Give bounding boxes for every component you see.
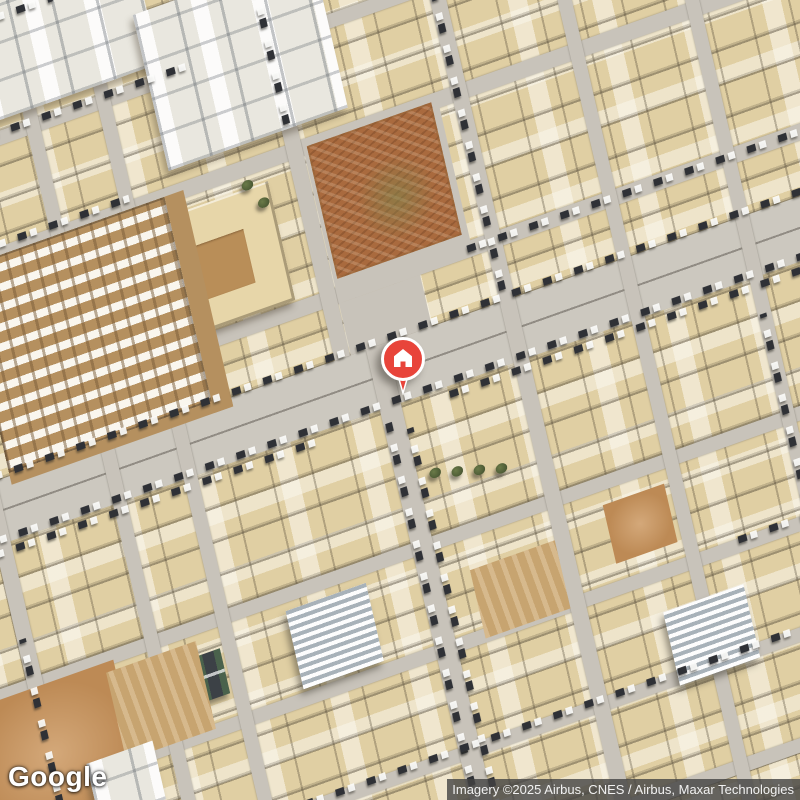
attribution-bar: Imagery ©2025 Airbus, CNES / Airbus, Max…: [447, 779, 800, 800]
satellite-map[interactable]: Google Imagery ©2025 Airbus, CNES / Airb…: [0, 0, 800, 800]
tree: [450, 465, 464, 479]
city-texture: [0, 0, 800, 800]
sand-lot: [470, 540, 571, 638]
google-logo[interactable]: Google: [8, 761, 107, 793]
tree: [428, 466, 442, 480]
sand-lot: [603, 484, 678, 564]
street: [451, 0, 800, 800]
home-marker[interactable]: [377, 333, 429, 395]
attribution-text: Imagery ©2025 Airbus, CNES / Airbus, Max…: [452, 782, 794, 797]
tree: [473, 463, 487, 477]
tree: [495, 462, 509, 476]
